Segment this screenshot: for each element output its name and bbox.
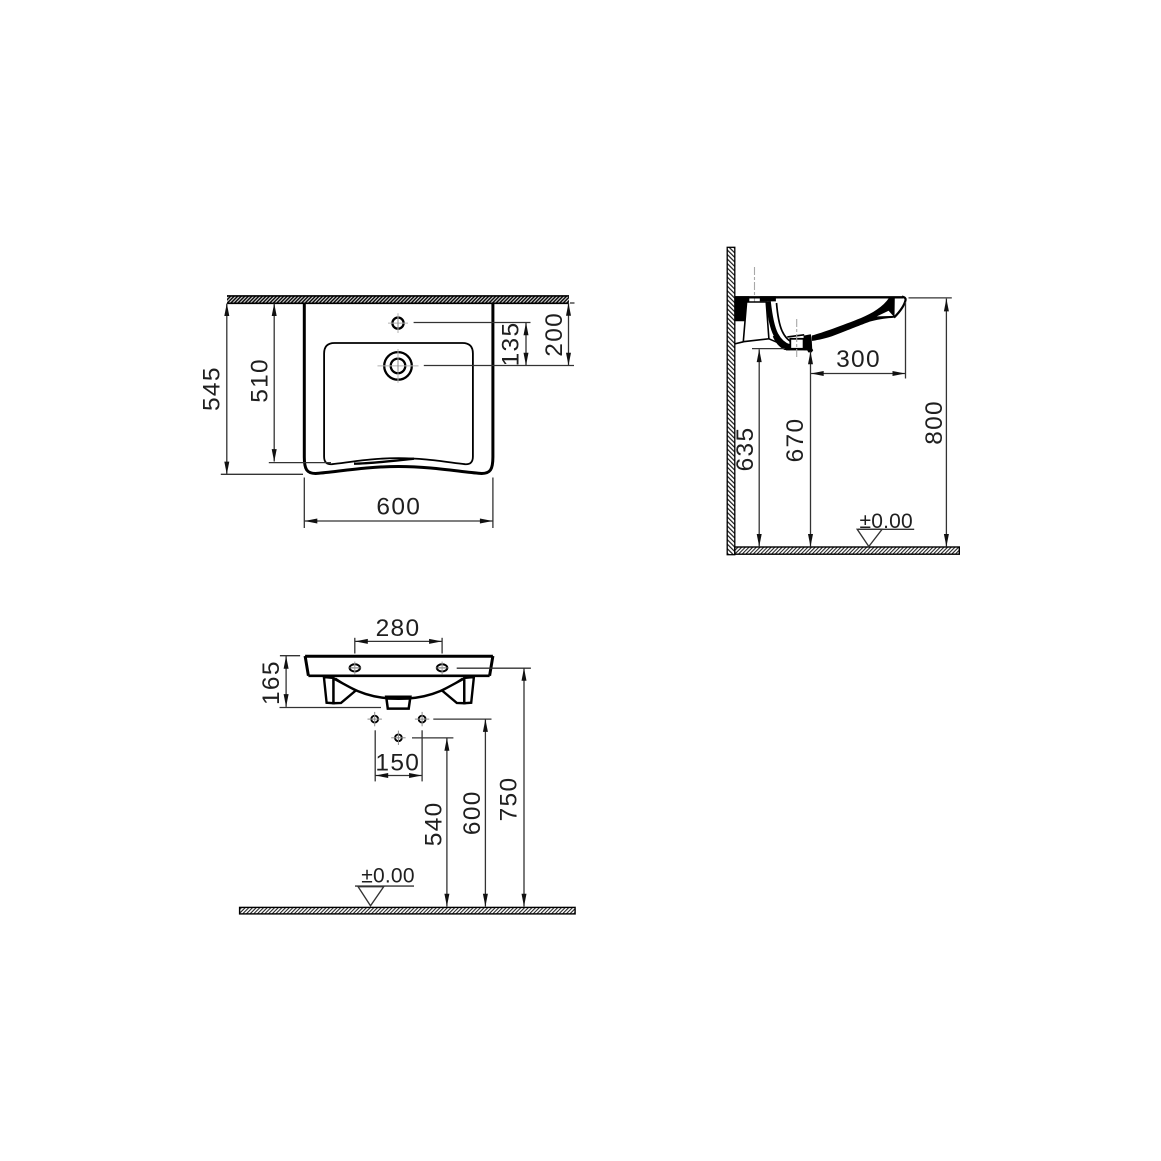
svg-text:670: 670 <box>782 418 809 463</box>
svg-text:750: 750 <box>496 777 523 822</box>
svg-text:510: 510 <box>246 358 273 403</box>
svg-text:635: 635 <box>732 427 759 472</box>
svg-text:280: 280 <box>376 615 421 642</box>
svg-text:600: 600 <box>376 494 421 521</box>
svg-text:150: 150 <box>375 749 420 776</box>
svg-text:600: 600 <box>459 790 486 835</box>
svg-text:800: 800 <box>921 400 948 445</box>
svg-text:200: 200 <box>541 312 568 357</box>
svg-text:±0.00: ±0.00 <box>361 865 414 888</box>
svg-text:165: 165 <box>258 660 285 705</box>
svg-text:540: 540 <box>421 801 448 846</box>
svg-text:300: 300 <box>836 346 881 373</box>
svg-text:545: 545 <box>199 366 226 411</box>
svg-text:135: 135 <box>498 322 525 367</box>
